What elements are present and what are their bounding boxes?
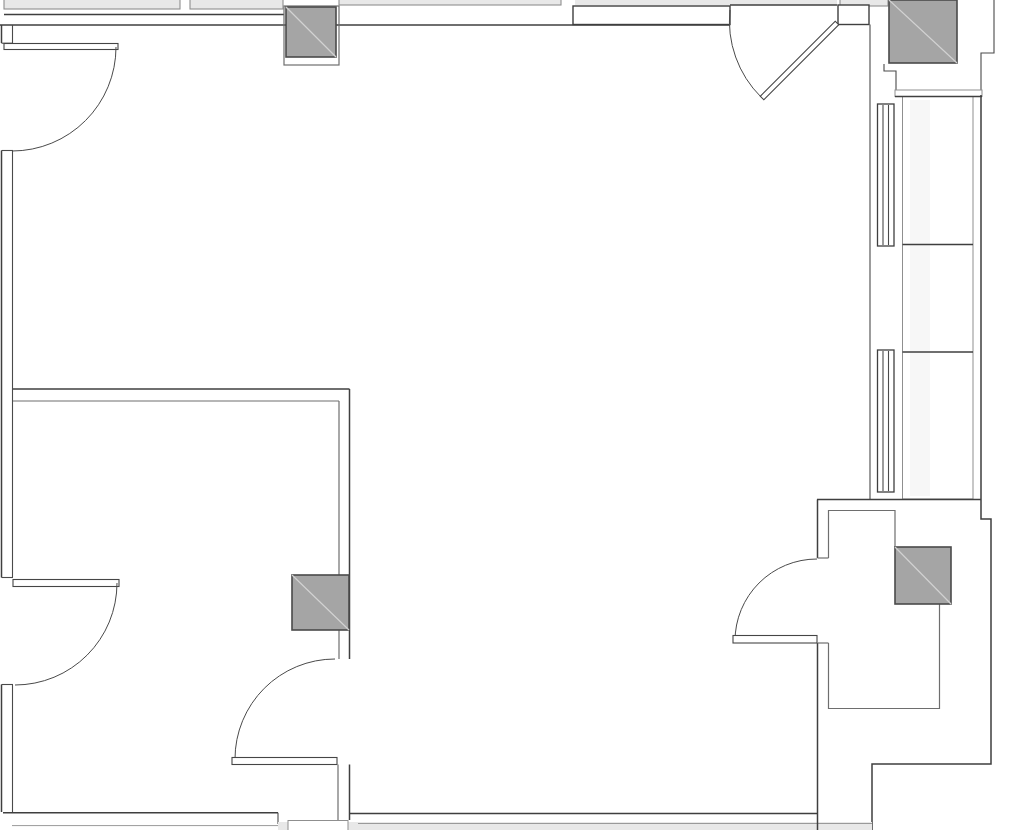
inner-room-walls (13, 389, 350, 826)
band-box-2 (190, 0, 283, 9)
door-left-lower (13, 580, 119, 686)
door-left-upper (4, 44, 118, 152)
vestibule-inner-upper (829, 511, 896, 559)
column-top-right-group (884, 0, 994, 95)
left-wall (2, 25, 120, 812)
door-vestibule (733, 559, 817, 643)
door-swing-arc (12, 47, 116, 151)
mullion-frame (878, 350, 895, 492)
window-mullion-lower (878, 350, 895, 492)
window-cap-top (895, 90, 982, 97)
door-leaf (232, 758, 337, 765)
door-leaf (760, 21, 838, 99)
door-inner-room (232, 659, 337, 765)
floor-plan-canvas (0, 0, 1022, 830)
door-leaf (4, 44, 118, 50)
door-top-right (729, 10, 838, 100)
floor-plan (0, 0, 1022, 830)
door-swing-arc (235, 659, 335, 759)
right-window-wall (870, 25, 991, 830)
vestibule (733, 500, 981, 830)
column-mid-left-group (292, 575, 349, 630)
band-box-1 (4, 0, 180, 9)
bottom-edge-box (288, 821, 348, 830)
column-vestibule-group (895, 547, 951, 604)
bottom-wall (3, 813, 872, 830)
window-mullion-upper (878, 104, 895, 246)
band-box-3 (339, 0, 561, 5)
top-wall-segment-b (838, 5, 869, 25)
column-top-middle-group (284, 6, 339, 65)
top-edge-band (4, 0, 888, 9)
door-leaf (13, 580, 119, 587)
panel-faint-strip (910, 100, 930, 496)
mullion-frame (878, 104, 895, 246)
vestibule-inner-lower (829, 604, 940, 709)
door-leaf (733, 636, 817, 644)
top-wall-segment-a (573, 6, 730, 25)
door-swing-arc (735, 559, 817, 641)
door-swing-arc (15, 583, 117, 685)
door-swing-arc (729, 10, 761, 97)
